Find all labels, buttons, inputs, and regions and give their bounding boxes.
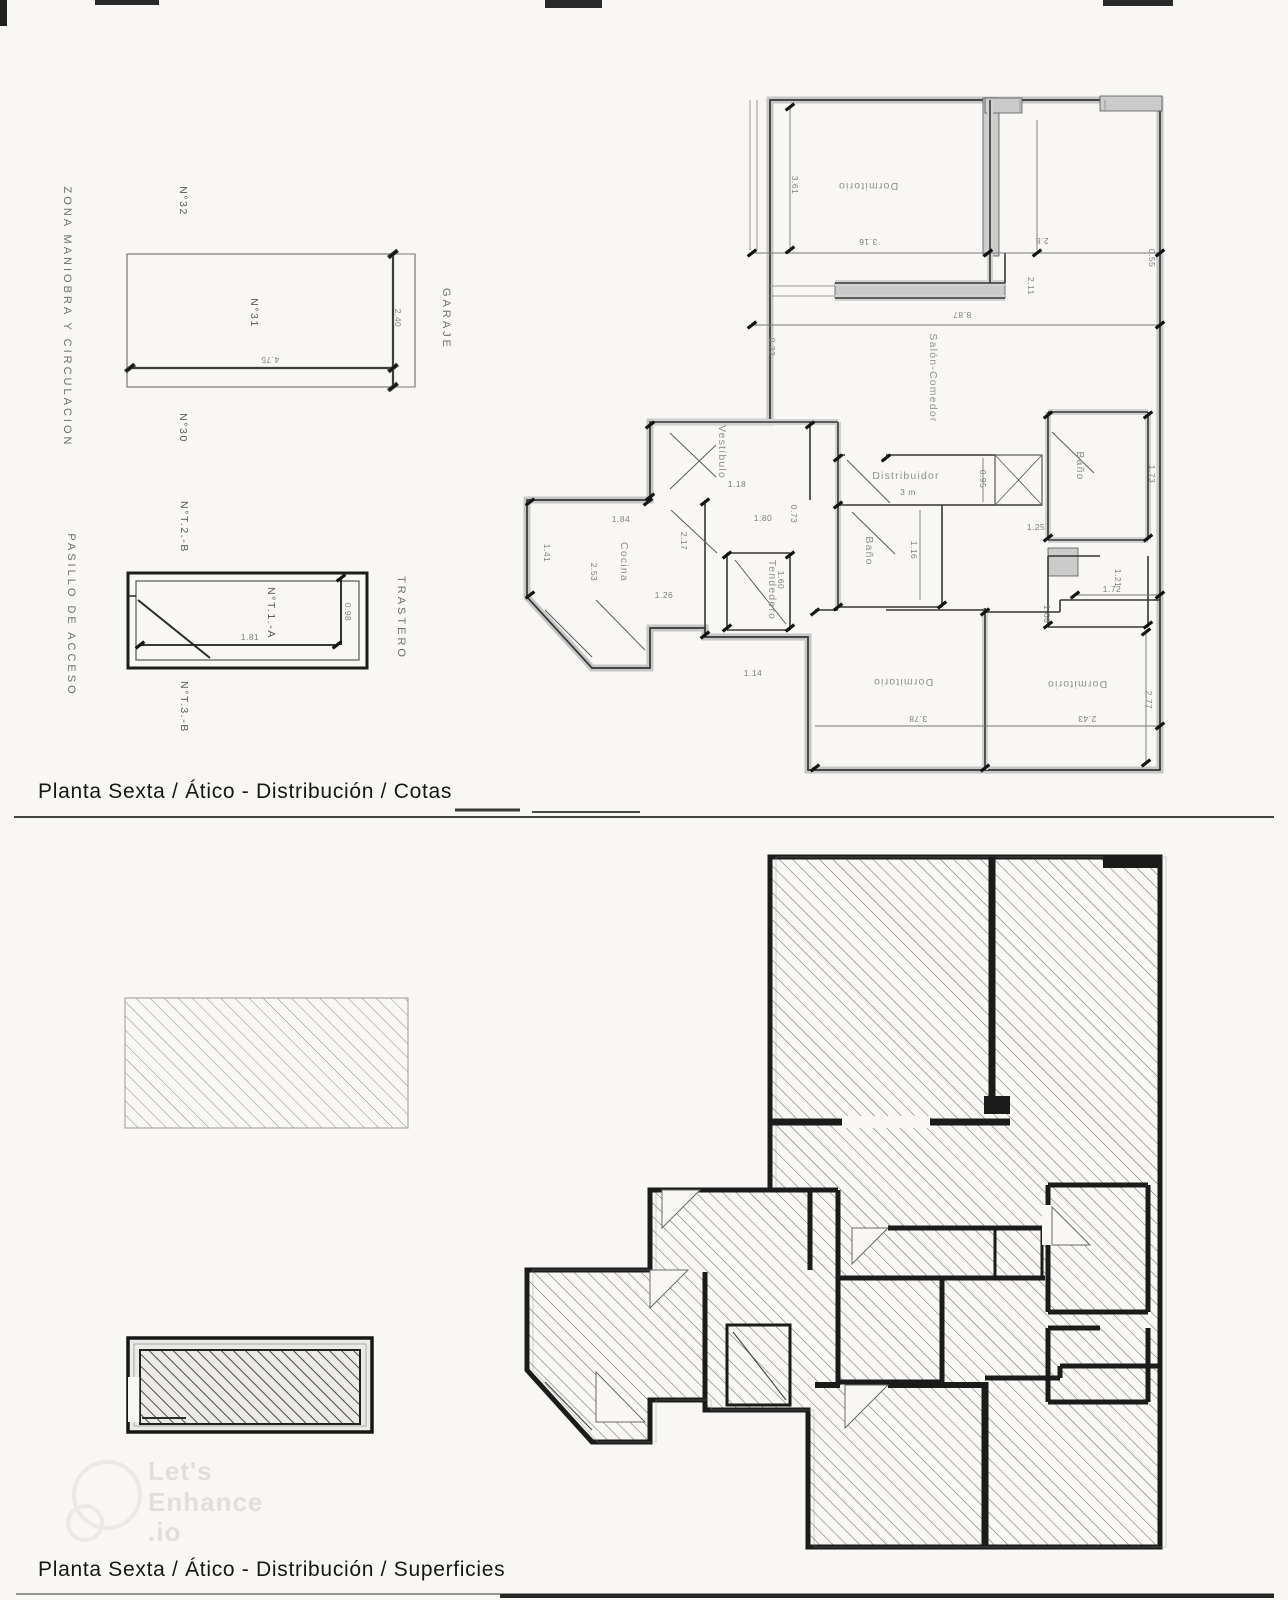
lets-enhance-watermark: Let's Enhance .io (48, 1428, 368, 1568)
panel-title-cotas: Planta Sexta / Ático - Distribución / Co… (38, 780, 452, 804)
watermark-text: Let's Enhance .io (148, 1456, 263, 1548)
trastero-superficie (128, 1338, 372, 1432)
trastero-cotas (128, 573, 367, 668)
apartment-plan-superficies (527, 855, 1166, 1547)
apartment-plan-cotas (525, 96, 1166, 773)
watermark-line3: .io (148, 1517, 263, 1548)
watermark-line1: Let's (148, 1456, 263, 1487)
garage-space-cotas (125, 249, 415, 391)
scanned-floorplan-sheet: ZONA MANIOBRA Y CIRCULACIONPASILLO DE AC… (0, 0, 1288, 1600)
dimension-ticks (525, 102, 1166, 772)
watermark-line2: Enhance (148, 1487, 263, 1518)
garage-space-superficie (125, 998, 408, 1128)
watermark-circle-small-icon (66, 1504, 104, 1542)
